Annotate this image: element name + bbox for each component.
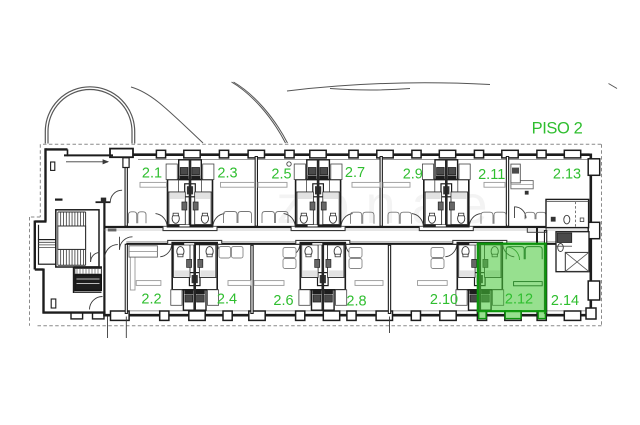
svg-text:2.2: 2.2 bbox=[141, 292, 161, 308]
svg-text:2.14: 2.14 bbox=[551, 293, 579, 309]
svg-text:2.7: 2.7 bbox=[345, 165, 365, 181]
svg-text:2.4: 2.4 bbox=[217, 292, 237, 308]
svg-text:2.12: 2.12 bbox=[505, 292, 533, 308]
svg-text:PISO 2: PISO 2 bbox=[532, 120, 583, 138]
svg-text:2.3: 2.3 bbox=[217, 166, 237, 182]
svg-text:2.6: 2.6 bbox=[273, 293, 293, 309]
svg-text:2.8: 2.8 bbox=[346, 294, 366, 310]
svg-text:2.5: 2.5 bbox=[271, 167, 291, 183]
svg-text:2.11: 2.11 bbox=[478, 167, 505, 183]
svg-text:2.1: 2.1 bbox=[142, 166, 162, 182]
svg-text:2.10: 2.10 bbox=[430, 292, 458, 308]
svg-text:2.9: 2.9 bbox=[403, 167, 423, 183]
svg-text:2.13: 2.13 bbox=[553, 167, 581, 183]
